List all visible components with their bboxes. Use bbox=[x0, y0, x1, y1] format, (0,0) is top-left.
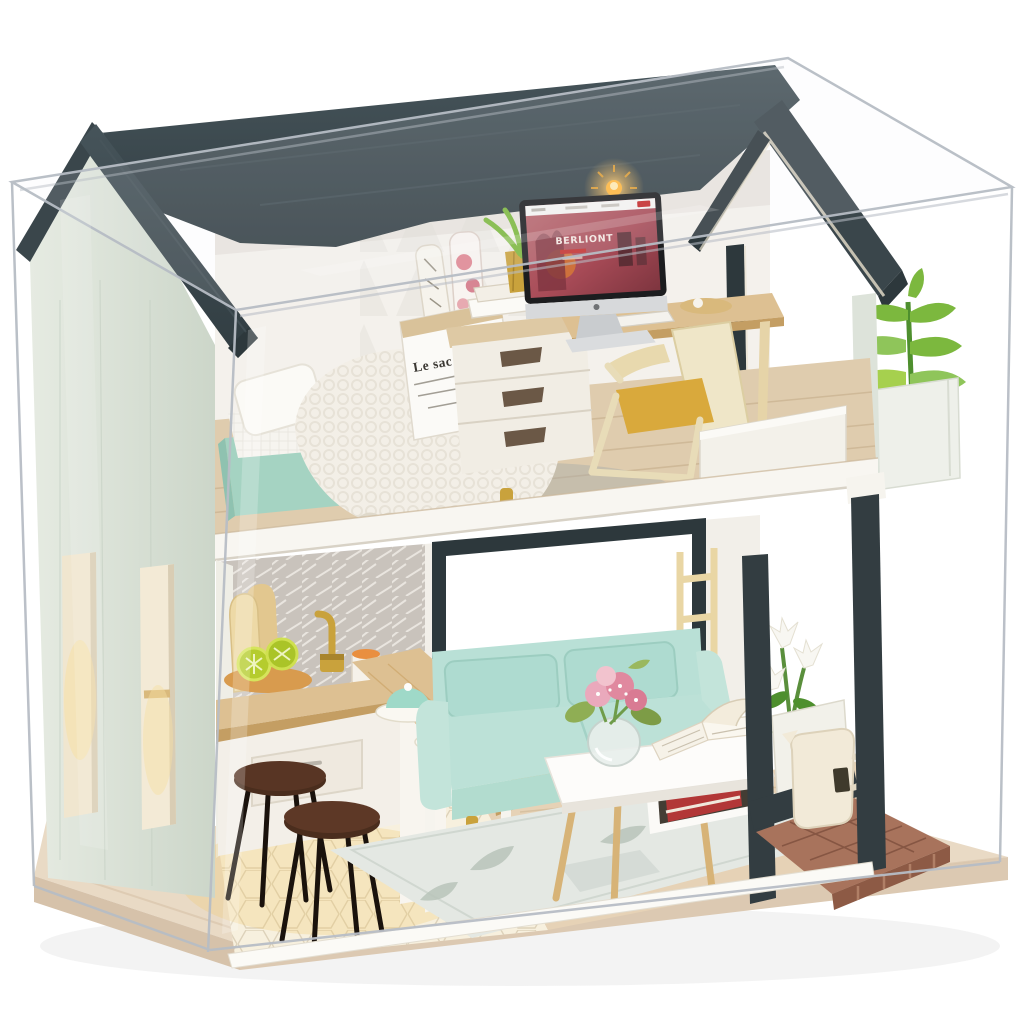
case-edge-right bbox=[1000, 187, 1012, 862]
case-edge-left bbox=[12, 182, 34, 886]
window-slot-2 bbox=[140, 564, 176, 830]
watering-jug bbox=[782, 729, 864, 828]
right-structure bbox=[742, 472, 950, 910]
jug-label bbox=[833, 767, 850, 792]
dollhouse-illustration: Le sac en papier bbox=[0, 0, 1024, 1024]
desk-tray bbox=[680, 298, 732, 314]
sofa-arm-left bbox=[416, 700, 452, 810]
product-photo: Le sac en papier bbox=[0, 0, 1024, 1024]
